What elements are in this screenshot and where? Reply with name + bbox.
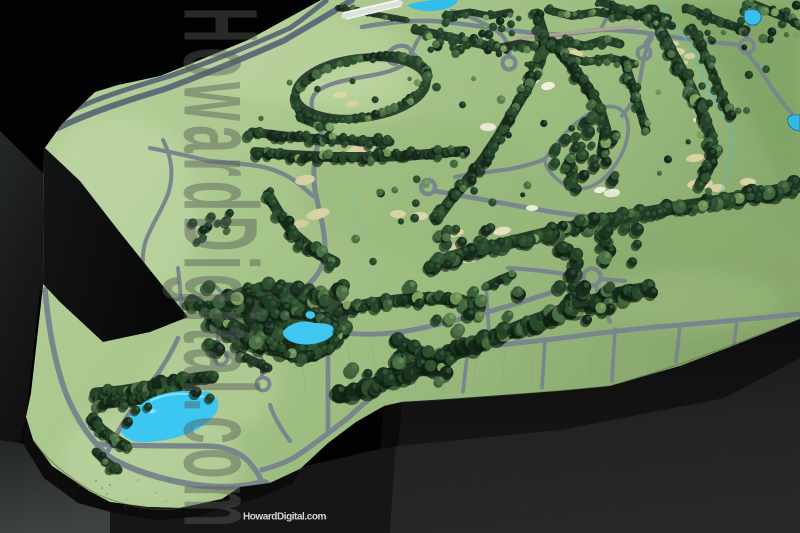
svg-text:HowardDigital.com: HowardDigital.com (162, 7, 278, 531)
svg-text:HowardDigital.com: HowardDigital.com (243, 512, 326, 523)
